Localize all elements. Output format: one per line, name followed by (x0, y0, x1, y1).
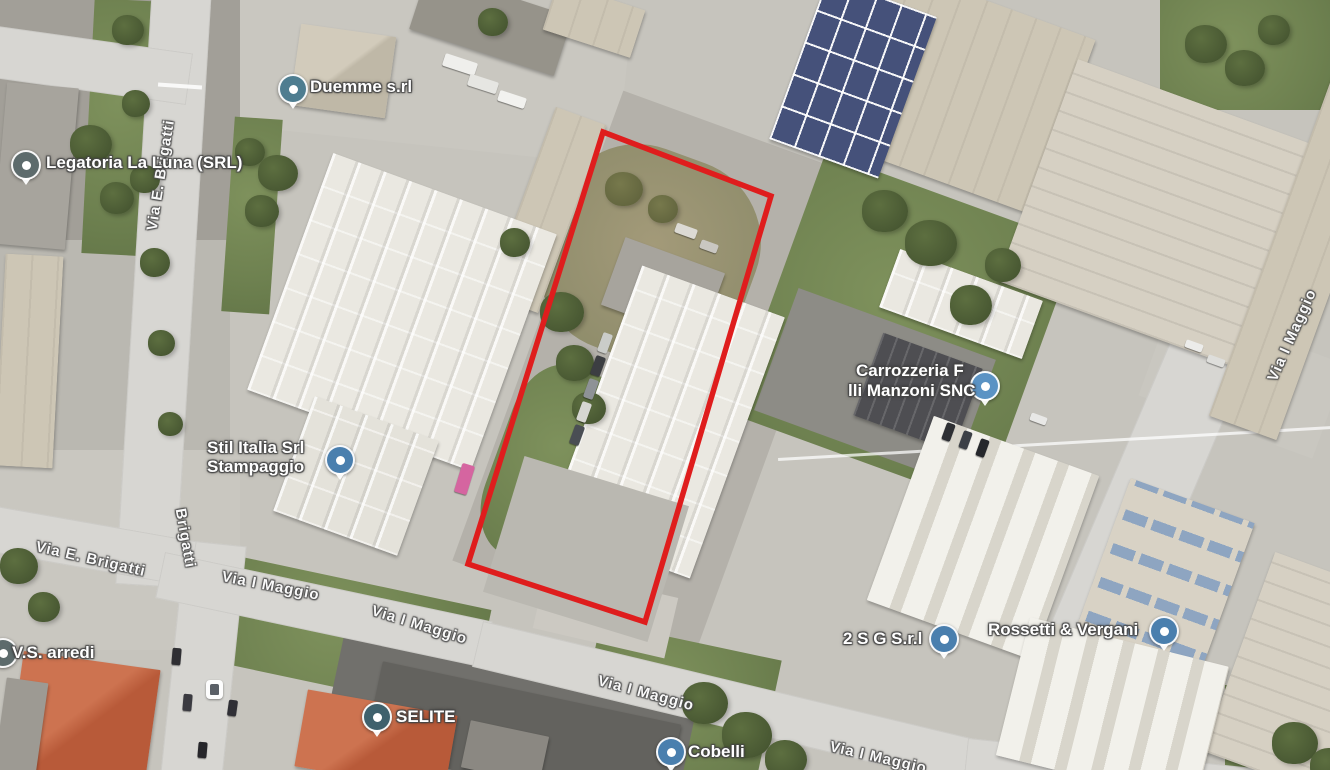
building-roof (0, 254, 64, 469)
tree (100, 182, 134, 214)
marker-selite[interactable] (362, 702, 392, 732)
tree (905, 220, 957, 266)
tree (478, 8, 508, 36)
poi-label-legatoria[interactable]: Legatoria La Luna (SRL) (46, 153, 242, 173)
car (182, 694, 192, 712)
tree (245, 195, 279, 227)
tree (540, 292, 584, 332)
marker-legatoria[interactable] (11, 150, 41, 180)
poi-label-carrozzeria[interactable]: Carrozzeria F lli Manzoni SNC (848, 361, 976, 401)
poi-label-selite[interactable]: SELITE (396, 707, 456, 727)
tree (112, 15, 144, 45)
tree (500, 228, 530, 257)
poi-label-line: Carrozzeria F (848, 361, 976, 381)
poi-label-duemme[interactable]: Duemme s.rl (310, 77, 412, 97)
marker-rossetti[interactable] (1149, 616, 1179, 646)
tree (1225, 50, 1265, 86)
tree (122, 90, 150, 117)
bus-glyph (210, 684, 219, 695)
poi-label-rossetti[interactable]: Rossetti & Vergani (988, 620, 1138, 640)
car (171, 648, 181, 666)
truck (454, 463, 475, 495)
building-duemme (290, 24, 396, 119)
poi-label-2sg[interactable]: 2 S G S.r.l (843, 629, 922, 649)
marker-2sg[interactable] (929, 624, 959, 654)
tree (1185, 25, 1227, 63)
bus-stop-icon[interactable] (206, 680, 223, 699)
tree (148, 330, 175, 356)
tree (648, 195, 678, 223)
tree (950, 285, 992, 325)
tree (258, 155, 298, 191)
tree (28, 592, 60, 622)
car (1029, 412, 1048, 425)
tree (1258, 15, 1290, 45)
car (227, 699, 238, 716)
tree (985, 248, 1021, 282)
car (197, 742, 207, 759)
poi-label-cobelli[interactable]: Cobelli (688, 742, 745, 762)
poi-label-line: Stampaggio (207, 457, 304, 476)
tree (0, 548, 38, 584)
tree (158, 412, 183, 436)
poi-label-line: Stil Italia Srl (207, 438, 304, 457)
poi-label-stil-italia[interactable]: Stil Italia Srl Stampaggio (207, 438, 304, 476)
satellite-map[interactable]: Via E. Brigatti Via E. Brigatti Brigatti… (0, 0, 1330, 770)
marker-cobelli[interactable] (656, 737, 686, 767)
tree (140, 248, 170, 277)
tree (556, 345, 594, 381)
marker-duemme[interactable] (278, 74, 308, 104)
marker-stil-italia[interactable] (325, 445, 355, 475)
tree (862, 190, 908, 232)
poi-label-line: lli Manzoni SNC (848, 381, 976, 401)
tree (605, 172, 643, 206)
poi-label-vs-arredi[interactable]: V.S. arredi (12, 643, 95, 663)
